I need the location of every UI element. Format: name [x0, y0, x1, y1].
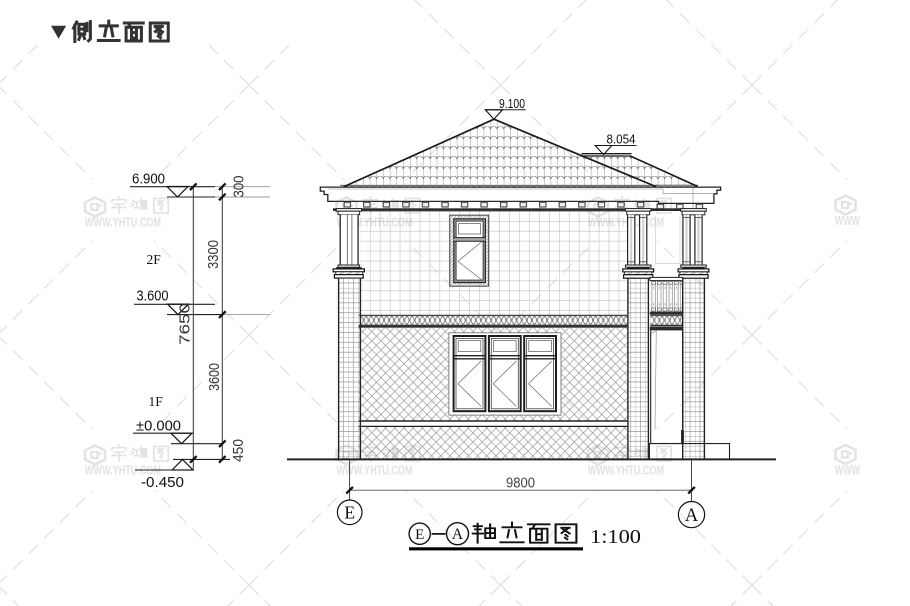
svg-text:WWW.YHTU.COM: WWW.YHTU.COM [588, 464, 664, 478]
svg-text:2F: 2F [147, 252, 162, 267]
svg-text:3300: 3300 [206, 240, 222, 269]
svg-text:9.100: 9.100 [499, 96, 525, 111]
svg-text:7650: 7650 [178, 303, 194, 345]
svg-text:WWW.YHTU.COM: WWW.YHTU.COM [85, 216, 161, 230]
svg-text:±0.000: ±0.000 [136, 418, 181, 435]
svg-text:-0.450: -0.450 [141, 474, 184, 491]
svg-text:1F: 1F [149, 394, 164, 409]
svg-text:3600: 3600 [207, 363, 223, 391]
svg-text:6.900: 6.900 [132, 171, 165, 188]
svg-text:3.600: 3.600 [137, 288, 169, 305]
svg-text:WWW: WWW [835, 214, 860, 228]
svg-text:1:100: 1:100 [590, 526, 641, 548]
svg-text:E: E [344, 502, 355, 522]
svg-text:9800: 9800 [506, 476, 535, 492]
svg-text:8.054: 8.054 [607, 131, 636, 146]
svg-text:A: A [452, 526, 464, 543]
svg-text:450: 450 [231, 439, 247, 462]
svg-text:E: E [415, 527, 424, 543]
svg-text:A: A [685, 506, 699, 526]
svg-text:300: 300 [232, 176, 248, 198]
svg-text:WWW: WWW [835, 464, 860, 478]
svg-text:WWW.YHTU.COM: WWW.YHTU.COM [337, 464, 413, 478]
